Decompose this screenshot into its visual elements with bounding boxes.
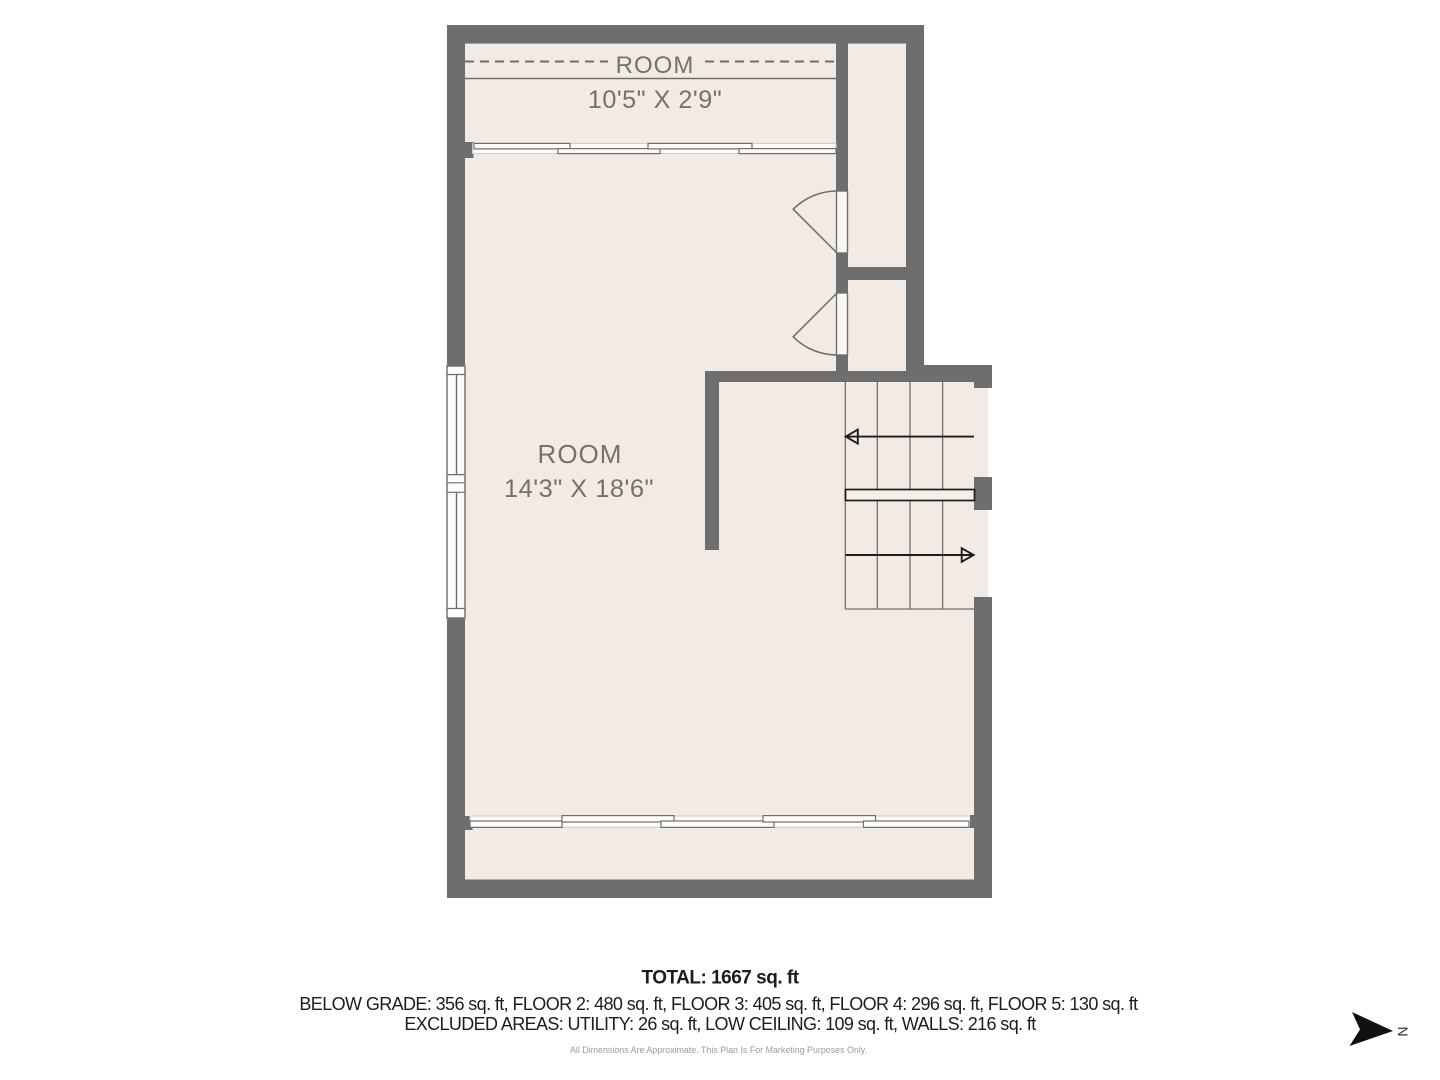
svg-text:TOTAL: 1667 sq. ft: TOTAL: 1667 sq. ft <box>641 968 799 989</box>
svg-text:All Dimensions Are Approximate: All Dimensions Are Approximate. This Pla… <box>570 1045 867 1055</box>
svg-text:BELOW GRADE: 356 sq. ft, FLOOR: BELOW GRADE: 356 sq. ft, FLOOR 2: 480 sq… <box>299 994 1138 1014</box>
svg-text:10'5" X 2'9": 10'5" X 2'9" <box>588 86 722 114</box>
svg-text:N: N <box>1395 1027 1411 1037</box>
svg-text:14'3" X 18'6": 14'3" X 18'6" <box>504 475 654 503</box>
svg-text:ROOM: ROOM <box>616 52 695 79</box>
svg-text:EXCLUDED AREAS: UTILITY: 26 sq: EXCLUDED AREAS: UTILITY: 26 sq. ft, LOW … <box>404 1014 1036 1034</box>
svg-text:ROOM: ROOM <box>538 439 623 469</box>
